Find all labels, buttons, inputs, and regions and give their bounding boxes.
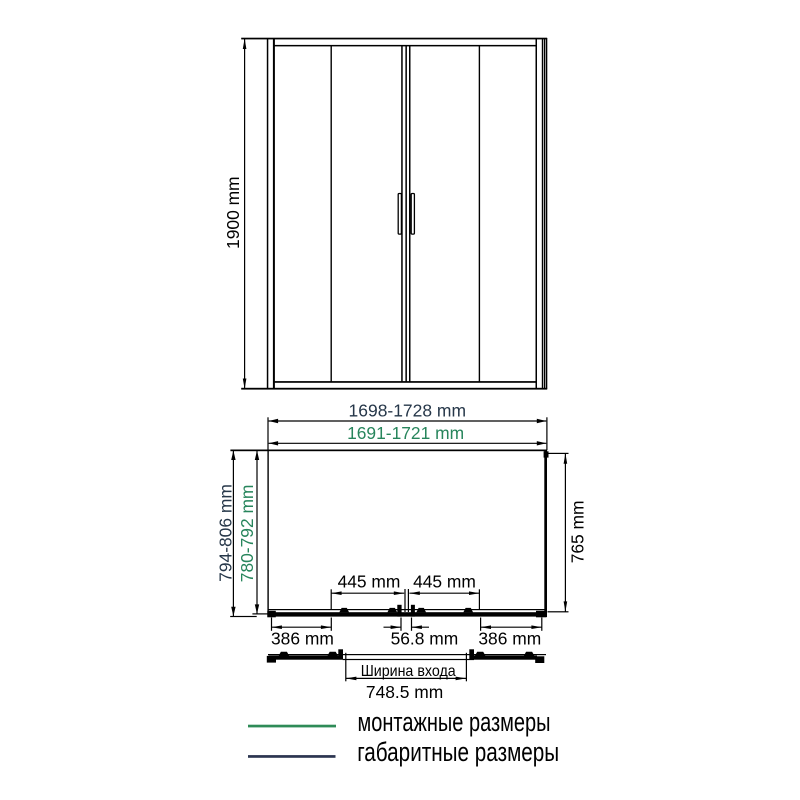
- svg-text:748.5 mm: 748.5 mm: [366, 682, 443, 702]
- svg-text:1691-1721 mm: 1691-1721 mm: [347, 423, 464, 443]
- svg-text:445 mm: 445 mm: [338, 572, 401, 592]
- svg-text:Ширина входа: Ширина входа: [361, 663, 456, 680]
- svg-text:386 mm: 386 mm: [271, 629, 334, 649]
- svg-text:монтажные размеры: монтажные размеры: [358, 707, 551, 737]
- svg-text:386 mm: 386 mm: [478, 629, 541, 649]
- svg-text:1900 mm: 1900 mm: [223, 176, 243, 249]
- svg-text:1698-1728 mm: 1698-1728 mm: [349, 401, 467, 421]
- svg-text:794-806 mm: 794-806 mm: [215, 484, 235, 582]
- svg-text:56.8 mm: 56.8 mm: [391, 629, 459, 649]
- svg-text:габаритные размеры: габаритные размеры: [357, 737, 559, 767]
- svg-text:765 mm: 765 mm: [568, 500, 588, 563]
- svg-text:445 mm: 445 mm: [413, 572, 476, 592]
- svg-text:780-792 mm: 780-792 mm: [237, 485, 257, 583]
